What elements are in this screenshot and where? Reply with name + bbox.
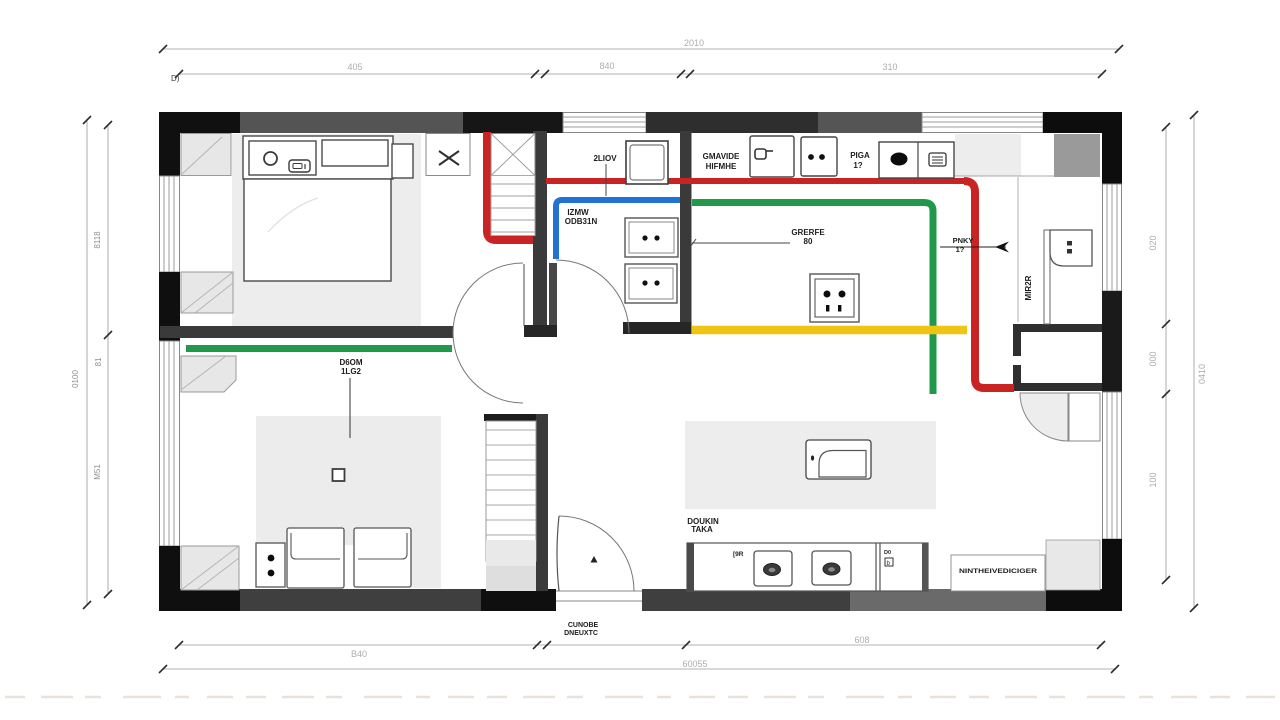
svg-text:B40: B40 <box>351 649 367 659</box>
svg-text:DNEUXTC: DNEUXTC <box>564 630 598 637</box>
svg-text:PIGA: PIGA <box>850 151 870 160</box>
svg-text:1?: 1? <box>853 161 862 170</box>
svg-text:020: 020 <box>1148 235 1158 250</box>
svg-text:TAKA: TAKA <box>691 525 713 534</box>
svg-text:1LG2: 1LG2 <box>341 367 362 376</box>
svg-text:60055: 60055 <box>682 659 707 669</box>
svg-text:8118: 8118 <box>93 231 102 249</box>
svg-text:ODB31N: ODB31N <box>565 217 598 226</box>
svg-text:0410: 0410 <box>1197 364 1207 384</box>
svg-text:405: 405 <box>347 62 362 72</box>
svg-text:PNKY: PNKY <box>953 236 974 245</box>
svg-text:1?: 1? <box>956 245 965 254</box>
svg-text:80: 80 <box>804 237 813 246</box>
svg-text:GRERFE: GRERFE <box>791 228 825 237</box>
svg-text:D6OM: D6OM <box>339 358 362 367</box>
svg-text:81: 81 <box>94 357 103 366</box>
svg-text:[9R: [9R <box>733 551 744 558</box>
svg-text:MIR2R: MIR2R <box>1024 275 1033 300</box>
svg-text:310: 310 <box>882 62 897 72</box>
svg-text:608: 608 <box>854 635 869 645</box>
svg-text:D0: D0 <box>884 550 891 556</box>
svg-text:NINTHEIVEDICIGER: NINTHEIVEDICIGER <box>959 568 1037 575</box>
svg-text:2LIOV: 2LIOV <box>593 154 617 163</box>
svg-text:840: 840 <box>599 61 614 71</box>
svg-text:0100: 0100 <box>71 370 80 388</box>
svg-text:HIFMHE: HIFMHE <box>706 162 737 171</box>
svg-text:2010: 2010 <box>684 38 704 48</box>
svg-text:IZMW: IZMW <box>567 208 589 217</box>
svg-text:CUNOBE: CUNOBE <box>568 622 599 629</box>
svg-text:GMAVIDE: GMAVIDE <box>703 152 740 161</box>
svg-text:M51: M51 <box>93 464 102 480</box>
svg-text:D): D) <box>171 74 180 83</box>
svg-text:100: 100 <box>1148 472 1158 487</box>
svg-text:000: 000 <box>1148 351 1158 366</box>
